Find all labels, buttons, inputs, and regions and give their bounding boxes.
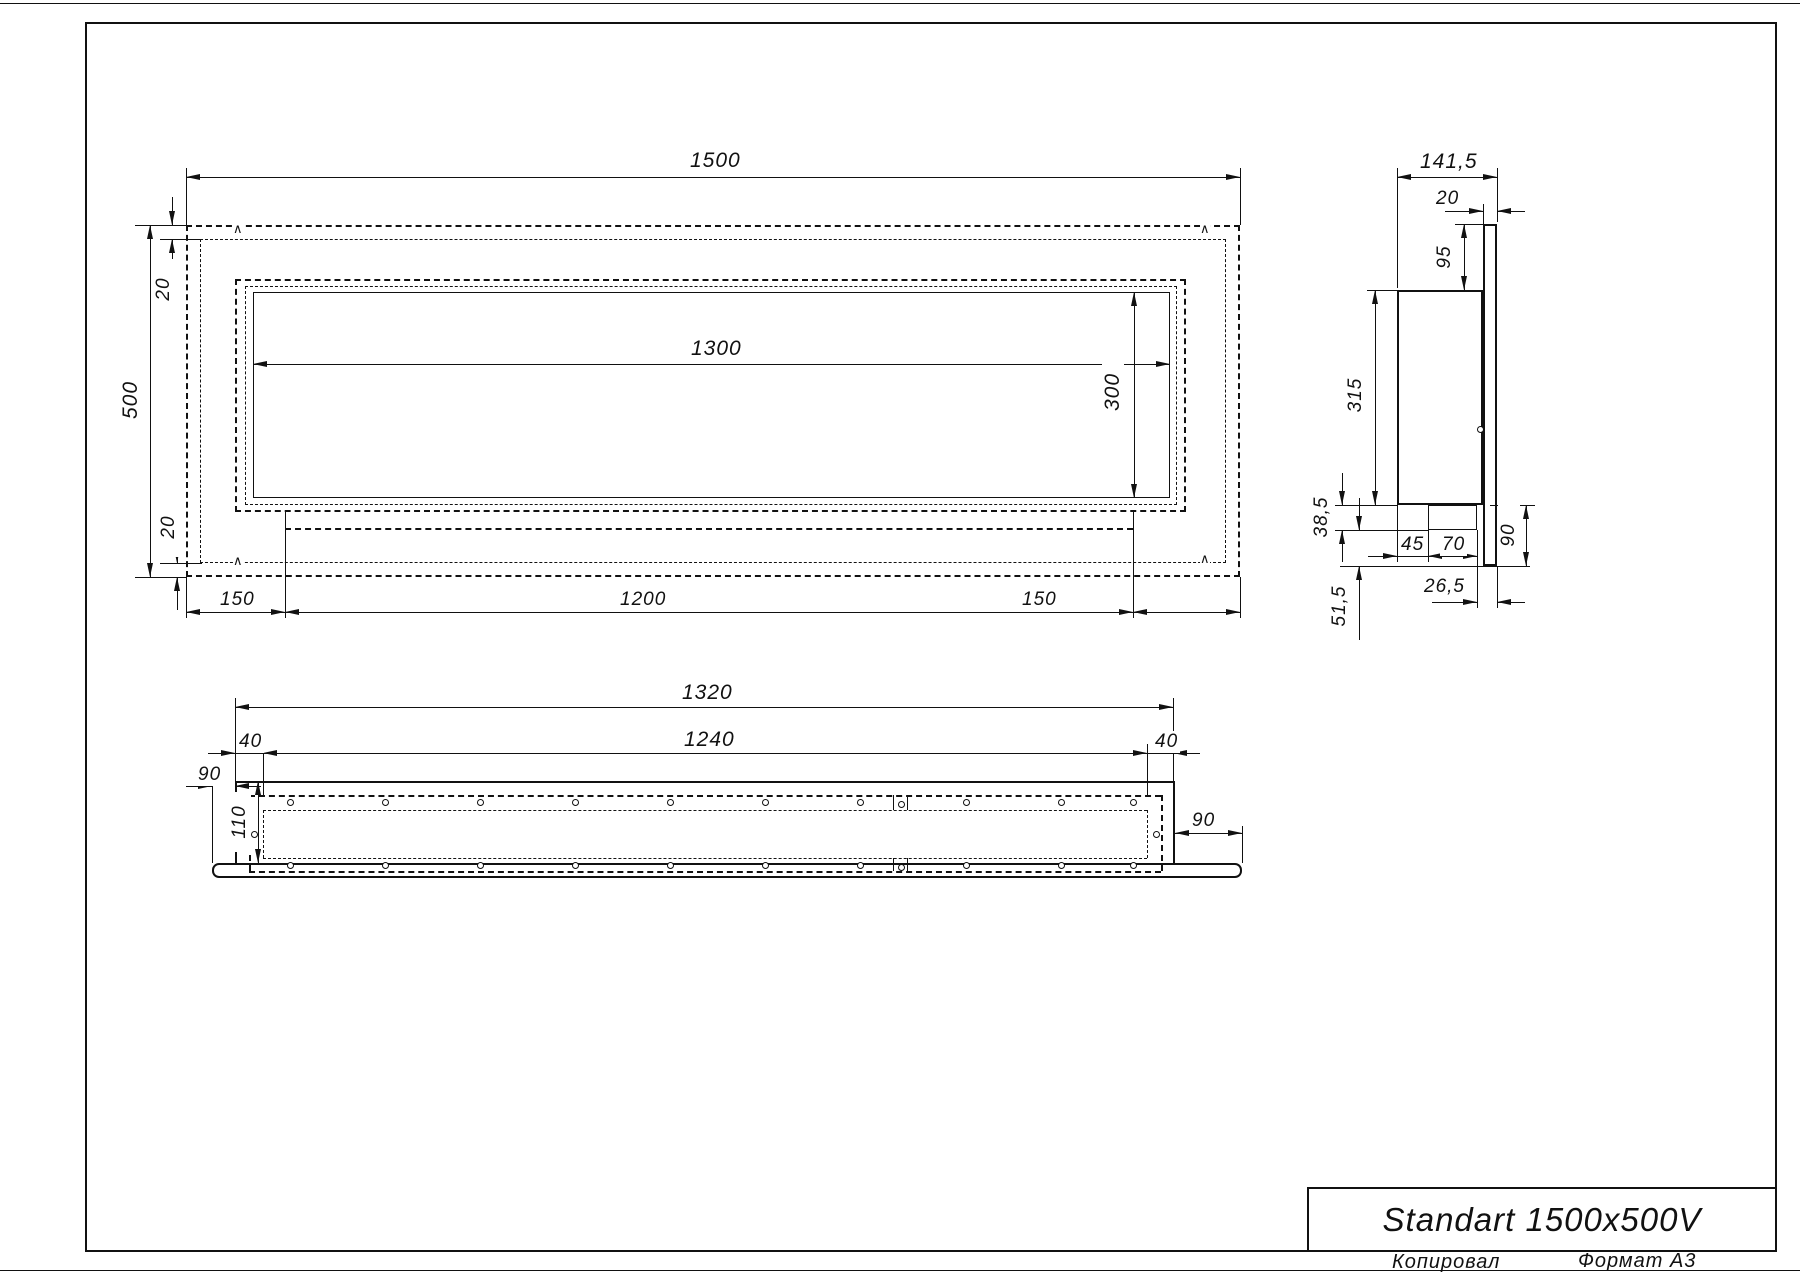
extension-line — [160, 239, 202, 240]
extension-line — [160, 563, 202, 564]
arrowhead — [169, 211, 175, 225]
arrowhead — [1463, 599, 1477, 605]
arrowhead — [1159, 704, 1173, 710]
extension-line — [285, 528, 286, 618]
front-opening-outline — [253, 292, 1170, 498]
front-bracket-left-edge — [285, 512, 286, 528]
arrowhead — [1497, 599, 1511, 605]
arrowhead — [235, 783, 249, 789]
extension-line — [1240, 168, 1241, 225]
screw-hole — [963, 862, 970, 869]
extension-line — [1397, 505, 1398, 562]
dim-side-tray-width: 70 — [1440, 534, 1467, 556]
arrowhead — [255, 781, 261, 795]
screw-hole — [382, 862, 389, 869]
arrowhead — [1523, 505, 1529, 519]
screw-hole — [1130, 799, 1137, 806]
dimension-line — [253, 364, 1170, 365]
weld-mark-icon: ∧ — [233, 222, 243, 235]
title-block: Standart 1500x500V — [1307, 1187, 1777, 1252]
extension-line — [1483, 204, 1484, 224]
dim-front-bracket-width: 1200 — [618, 589, 668, 611]
bottom-wall-outline — [1161, 795, 1163, 871]
screw-hole — [762, 862, 769, 869]
dim-side-lower-inset: 51,5 — [1329, 576, 1351, 636]
dim-front-opening-height: 300 — [1102, 362, 1124, 422]
arrowhead — [1461, 224, 1467, 238]
screw-hole — [287, 862, 294, 869]
bottom-wall-outline — [263, 810, 264, 858]
screw-hole — [963, 799, 970, 806]
bottom-wall-outline — [263, 858, 1147, 859]
dimension-line — [235, 707, 1173, 708]
arrowhead — [1133, 609, 1147, 615]
drawing-sheet: { "symbols": { "weld": "∧" }, "front_vie… — [0, 0, 1800, 1273]
dimension-line — [1375, 290, 1376, 505]
extension-line — [212, 783, 213, 863]
dim-front-left-margin: 150 — [218, 589, 257, 611]
arrowhead — [1131, 484, 1137, 498]
dimension-line — [186, 612, 1240, 613]
dimension-line — [208, 753, 1200, 754]
screw-hole — [1058, 862, 1065, 869]
arrowhead — [1175, 830, 1189, 836]
bottom-center-joint — [907, 795, 908, 810]
arrowhead — [1131, 292, 1137, 306]
dim-side-top-inset: 95 — [1434, 227, 1456, 287]
bottom-wall-outline — [263, 810, 1147, 811]
front-bracket-edge — [285, 528, 1133, 530]
arrowhead — [271, 609, 285, 615]
screw-hole — [382, 799, 389, 806]
side-body-outline — [1397, 290, 1483, 505]
arrowhead — [147, 563, 153, 577]
footer-copied-by: Копировал — [1392, 1251, 1500, 1273]
extension-line — [1147, 744, 1148, 795]
bottom-body-right-edge — [1173, 781, 1175, 863]
screw-hole — [572, 799, 579, 806]
paper-top-edge — [0, 3, 1800, 4]
dimension-line — [1134, 292, 1135, 498]
arrowhead — [1226, 609, 1240, 615]
dim-bottom-flange-right: 90 — [1190, 810, 1217, 832]
extension-line — [135, 225, 186, 226]
dim-front-right-margin: 150 — [1020, 589, 1059, 611]
bottom-body-top-edge — [235, 781, 1175, 783]
arrowhead — [186, 609, 200, 615]
dim-front-top-offset: 20 — [153, 259, 175, 319]
screw-hole — [477, 862, 484, 869]
extension-line — [1133, 528, 1134, 618]
bottom-wall-outline — [1147, 810, 1148, 858]
extension-line — [1397, 168, 1398, 288]
arrowhead — [1397, 174, 1411, 180]
dim-bottom-wall-right: 40 — [1153, 731, 1180, 753]
dim-side-body-height: 315 — [1345, 365, 1367, 425]
weld-mark-icon: ∧ — [1200, 222, 1210, 235]
weld-mark-icon: ∧ — [233, 554, 243, 567]
arrowhead — [1228, 830, 1242, 836]
side-flange-outline — [1483, 224, 1497, 566]
dimension-line — [186, 177, 1240, 178]
screw-hole — [667, 799, 674, 806]
dim-side-flange-drop: 90 — [1498, 505, 1520, 565]
arrowhead — [147, 225, 153, 239]
arrowhead — [255, 849, 261, 863]
dim-side-depth: 141,5 — [1418, 151, 1480, 173]
screw-hole — [898, 801, 905, 808]
drawing-title: Standart 1500x500V — [1383, 1201, 1702, 1239]
dim-front-height: 500 — [120, 370, 142, 430]
screw-hole — [1477, 426, 1484, 433]
screw-hole — [1130, 862, 1137, 869]
extension-line — [1335, 530, 1428, 531]
weld-mark-icon: ∧ — [1200, 552, 1210, 565]
dim-side-flange-thickness: 20 — [1434, 188, 1461, 210]
screw-hole — [1153, 831, 1160, 838]
dimension-line — [1397, 177, 1497, 178]
arrowhead — [1133, 750, 1147, 756]
bottom-center-joint — [893, 795, 894, 810]
dim-front-bottom-offset: 20 — [158, 497, 180, 557]
paper-bottom-edge — [0, 1270, 1800, 1271]
arrowhead — [174, 577, 180, 591]
extension-line — [1477, 530, 1478, 608]
bottom-flange-strip — [212, 863, 1242, 878]
arrowhead — [1339, 491, 1345, 505]
side-tray-outline — [1428, 505, 1477, 530]
arrowhead — [253, 361, 267, 367]
screw-hole — [857, 862, 864, 869]
screw-hole — [667, 862, 674, 869]
arrowhead — [285, 609, 299, 615]
extension-line — [235, 698, 236, 781]
extension-line — [1240, 577, 1241, 618]
dim-side-bottom-inset: 38,5 — [1311, 487, 1333, 547]
dim-bottom-flange-left: 90 — [196, 764, 223, 786]
bottom-wall-outline — [249, 795, 1161, 797]
screw-hole — [477, 799, 484, 806]
arrowhead — [1497, 208, 1511, 214]
dim-bottom-outer-width: 1320 — [680, 682, 735, 704]
dim-side-flange-gap: 26,5 — [1422, 576, 1467, 598]
extension-line — [1340, 566, 1530, 567]
screw-hole — [251, 831, 258, 838]
arrowhead — [1469, 208, 1483, 214]
dim-front-opening-width: 1300 — [689, 338, 744, 360]
arrowhead — [1356, 516, 1362, 530]
dim-front-width: 1500 — [688, 150, 743, 172]
screw-hole — [1058, 799, 1065, 806]
screw-hole — [572, 862, 579, 869]
dim-bottom-depth: 110 — [229, 792, 251, 852]
arrowhead — [221, 750, 235, 756]
dim-bottom-wall-left: 40 — [237, 731, 264, 753]
screw-hole — [287, 799, 294, 806]
arrowhead — [1383, 553, 1397, 559]
arrowhead — [1372, 290, 1378, 304]
arrowhead — [1356, 566, 1362, 580]
arrowhead — [1372, 491, 1378, 505]
dim-bottom-inner-width: 1240 — [682, 729, 737, 751]
extension-line — [1335, 505, 1397, 506]
arrowhead — [1156, 361, 1170, 367]
arrowhead — [1483, 174, 1497, 180]
screw-hole — [898, 864, 905, 871]
screw-hole — [762, 799, 769, 806]
extension-line — [1242, 826, 1243, 863]
drawing-frame — [85, 22, 1777, 1252]
arrowhead — [1461, 276, 1467, 290]
dimension-line — [150, 225, 151, 577]
arrowhead — [1523, 552, 1529, 566]
arrowhead — [186, 174, 200, 180]
footer-format: Формат А3 — [1578, 1250, 1696, 1273]
extension-line — [1455, 224, 1483, 225]
arrowhead — [1119, 609, 1133, 615]
arrowhead — [1339, 530, 1345, 544]
arrowhead — [263, 750, 277, 756]
screw-hole — [857, 799, 864, 806]
front-bracket-right-edge — [1133, 512, 1134, 528]
dim-side-tray-offset: 45 — [1399, 534, 1426, 556]
arrowhead — [1226, 174, 1240, 180]
arrowhead — [235, 704, 249, 710]
arrowhead — [169, 239, 175, 253]
